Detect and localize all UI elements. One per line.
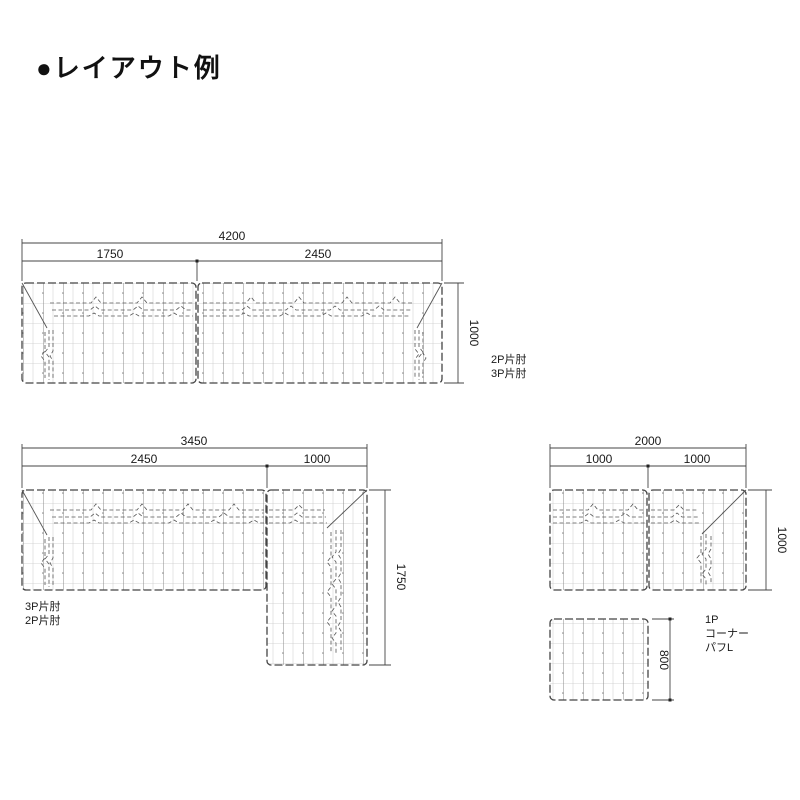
dim-split-dot — [196, 260, 199, 263]
dim-value-2450: 2450 — [131, 452, 158, 466]
dim-value-2450: 2450 — [305, 247, 332, 261]
layout-top-group: 4200 1750 2450 1000 2P片肘 3P片肘 — [22, 229, 526, 383]
dim-end-dot — [669, 699, 672, 702]
dim-value-1000: 1000 — [304, 452, 331, 466]
dim-value-1000-depth: 1000 — [467, 320, 481, 347]
unit-label-corner: コーナー — [705, 627, 749, 640]
unit-label-2p: 2P片肘 — [491, 352, 526, 366]
unit-label-3p: 3P片肘 — [25, 599, 60, 613]
dim-end-dot — [669, 618, 672, 621]
dim-value-3450: 3450 — [181, 434, 208, 448]
dim-value-1750: 1750 — [97, 247, 124, 261]
sofa-3p-one-arm-unit — [22, 490, 266, 590]
sofa-2p-corner-unit — [267, 490, 367, 665]
dim-value-2000: 2000 — [635, 434, 662, 448]
unit-label-2p: 2P片肘 — [25, 613, 60, 627]
dim-split-dot — [266, 465, 269, 468]
unit-label-1p: 1P — [705, 614, 718, 626]
sofa-2p-one-arm-unit — [22, 283, 196, 383]
dim-value-4200: 4200 — [219, 229, 246, 243]
dim-value-1750-depth: 1750 — [394, 564, 408, 591]
unit-label-3p: 3P片肘 — [491, 366, 526, 380]
ottoman-pouf-unit — [550, 619, 648, 700]
dim-split-dot — [647, 465, 650, 468]
dim-value-800: 800 — [657, 650, 671, 670]
dim-value-1000-left: 1000 — [586, 452, 613, 466]
unit-label-pouf: パフL — [705, 641, 733, 654]
dim-value-1000-depth: 1000 — [775, 527, 789, 554]
sofa-layout-diagram: 4200 1750 2450 1000 2P片肘 3P片肘 3450 2450 … — [0, 0, 800, 800]
layout-left-group: 3450 2450 1000 1750 3P片肘 2P片肘 — [22, 434, 408, 665]
layout-right-group: 2000 1000 1000 1000 800 1P コーナー パフL — [550, 434, 789, 702]
sofa-3p-one-arm-unit — [198, 283, 442, 383]
dim-value-1000-right: 1000 — [684, 452, 711, 466]
